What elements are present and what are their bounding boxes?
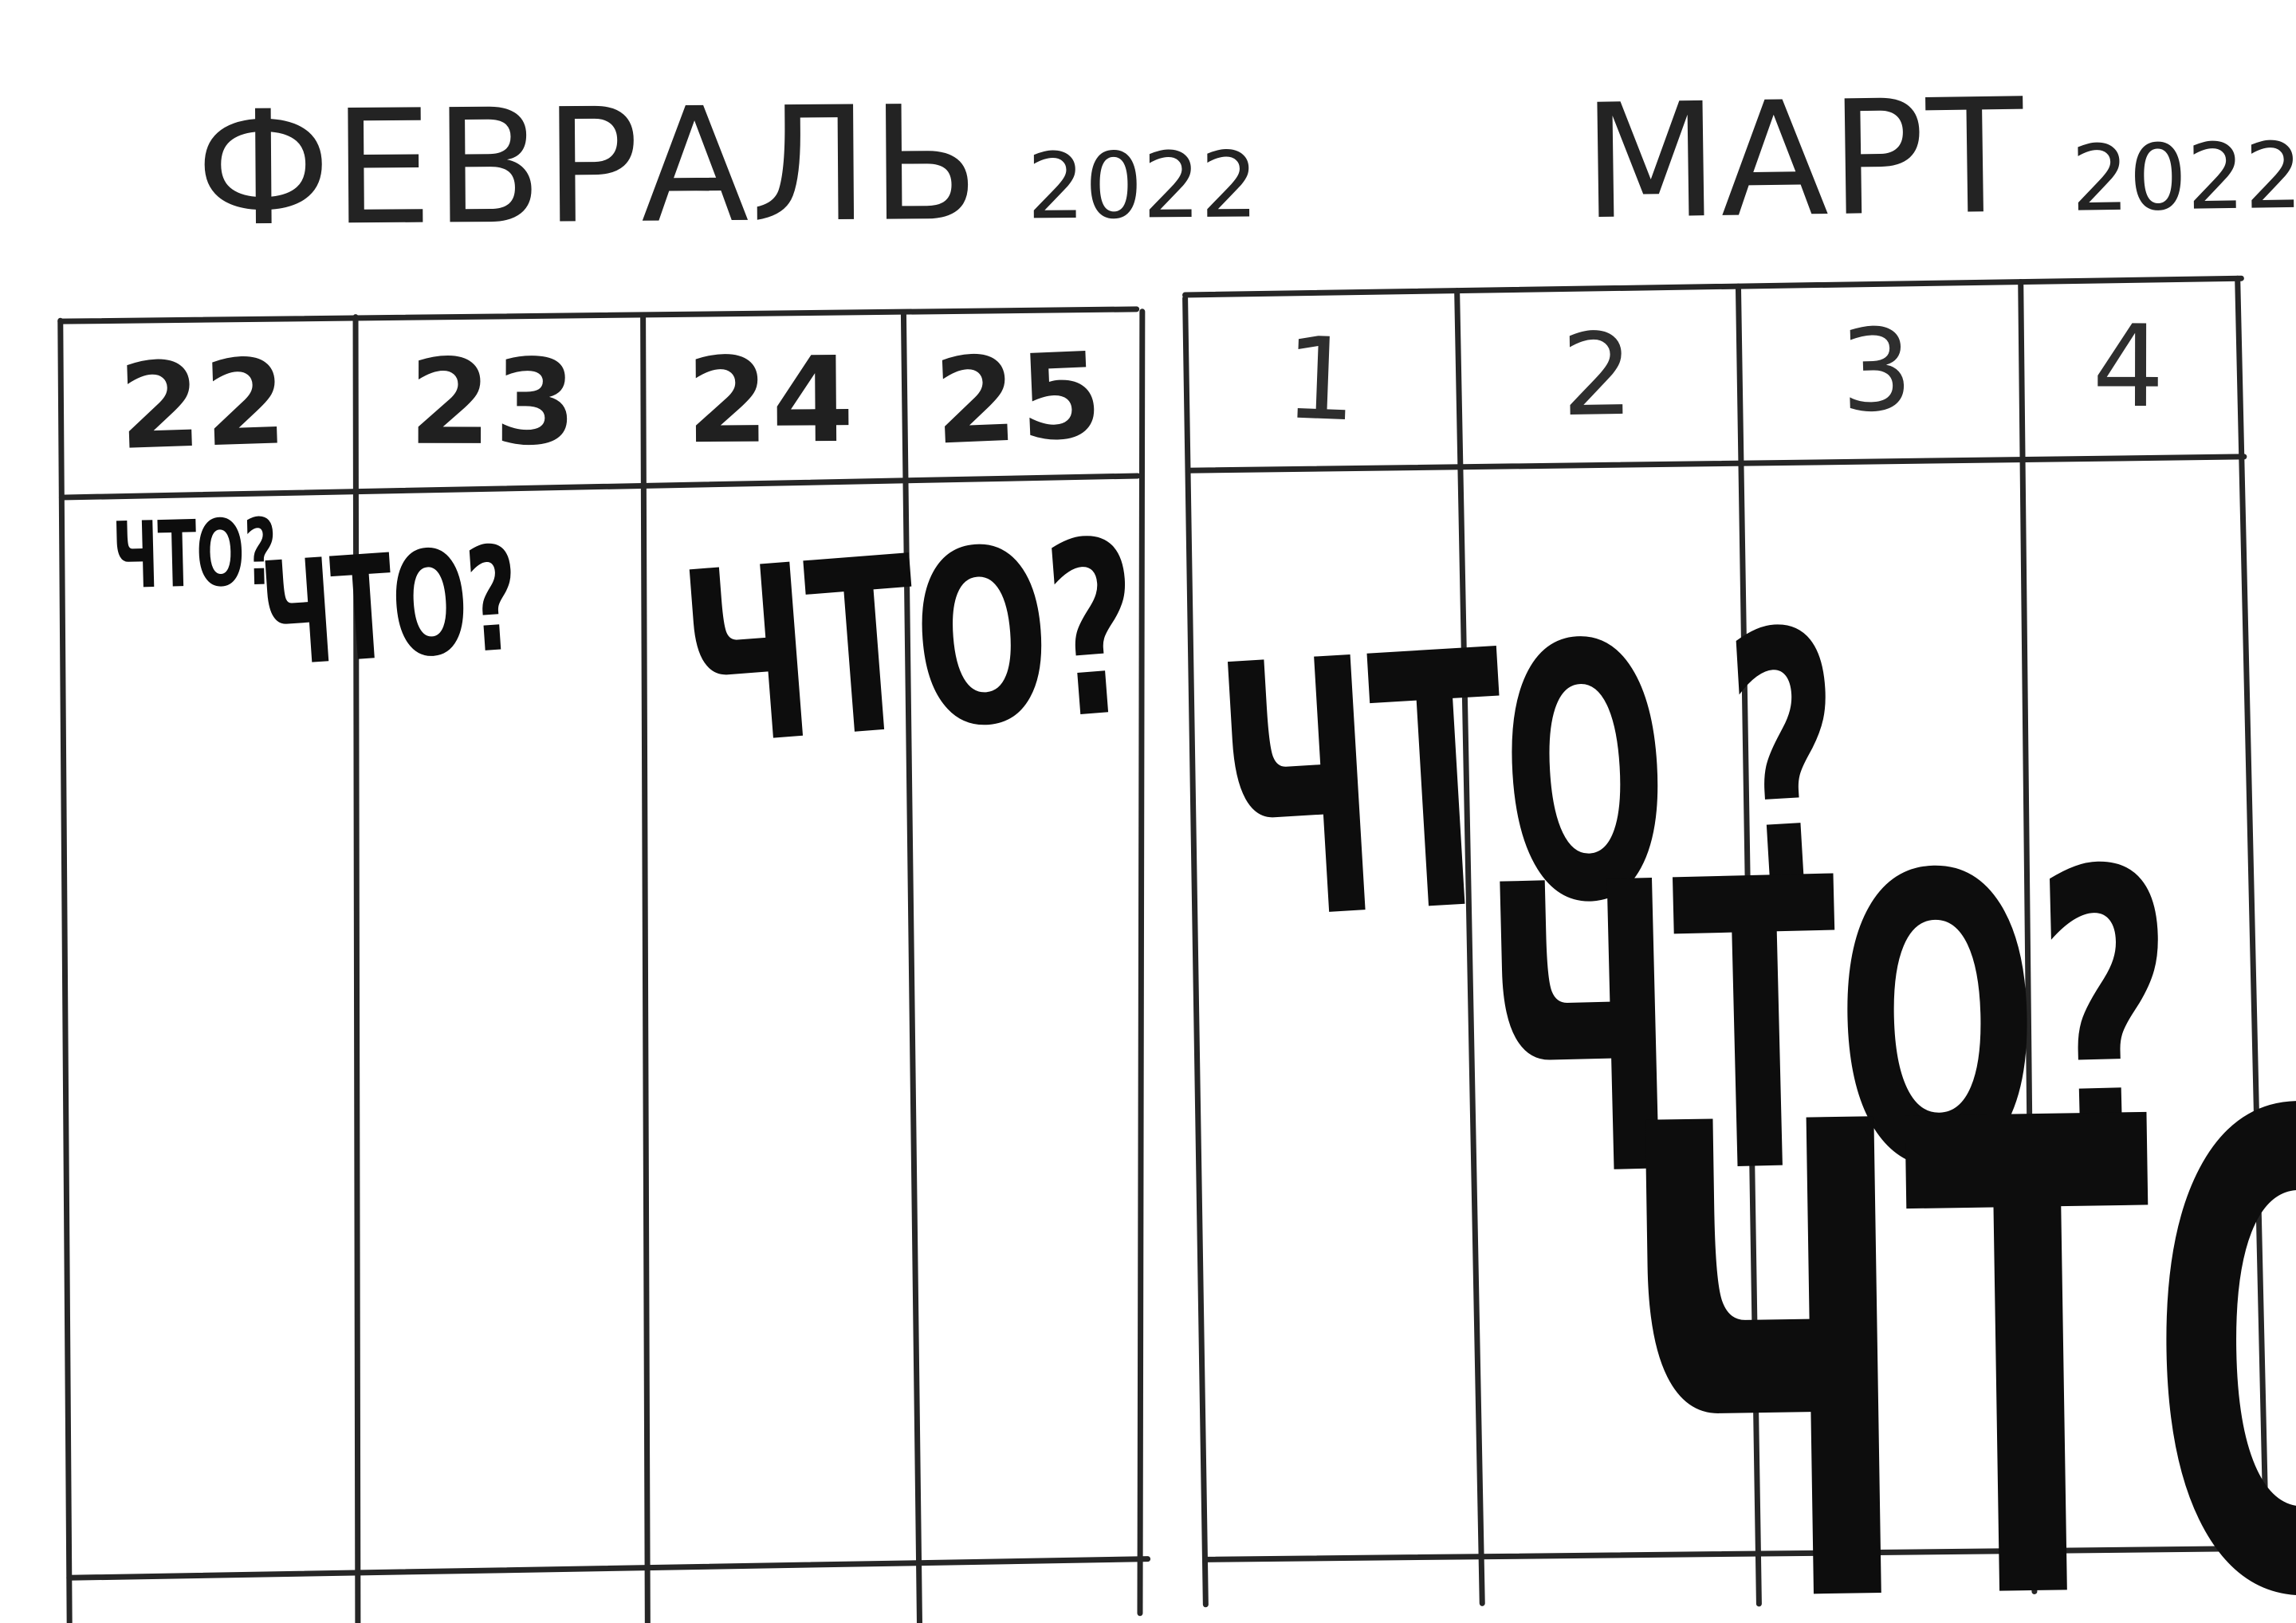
march-year-label: 2022 [2070, 123, 2296, 232]
day-header-mar-2: 2 [1457, 295, 1738, 455]
february-month-label: ФЕВРАЛЬ [195, 72, 981, 261]
day-header-mar-1: 1 [1181, 297, 1461, 462]
day-number: 23 [409, 334, 580, 471]
march-calendar: 1 2 3 4 ЧТО ? ЧТО? ЧТО [1182, 276, 2265, 1622]
table-left-border [57, 318, 72, 1623]
march-title: МАРТ 2022 [1581, 61, 2296, 255]
day-header-feb-24: 24 [638, 323, 905, 477]
day-number: 25 [931, 327, 1107, 471]
day-number: 24 [686, 332, 857, 470]
day-number: 1 [1283, 312, 1359, 446]
day-header-feb-23: 23 [350, 326, 639, 480]
table-right-border [1137, 308, 1145, 1616]
illustration-canvas: ФЕВРАЛЬ 2022 МАРТ 2022 22 23 24 25 ЧТО? [0, 0, 2296, 1623]
table-top-border [57, 306, 1139, 324]
day-number: 2 [1560, 308, 1634, 441]
entry-what-feb-22: ЧТО? [112, 507, 277, 603]
table-left-border [1182, 295, 1209, 1607]
march-month-label: МАРТ [1581, 65, 2026, 255]
day-header-feb-25: 25 [902, 317, 1138, 480]
entry-what-feb-24-25: ЧТО? [674, 509, 1146, 782]
day-number: 4 [2092, 301, 2164, 432]
day-number: 3 [1838, 304, 1915, 438]
day-header-mar-4: 4 [2015, 289, 2240, 445]
column-divider [640, 312, 651, 1623]
day-header-feb-22: 22 [56, 323, 352, 485]
february-title: ФЕВРАЛЬ 2022 [195, 69, 1259, 261]
entry-what-mar-3-giant: ЧТО [1615, 1032, 2296, 1623]
february-year-label: 2022 [1027, 132, 1259, 239]
february-calendar: 22 23 24 25 ЧТО? ЧТО? ЧТО? [57, 308, 1149, 1623]
entry-what-feb-23: ЧТО? [257, 528, 522, 688]
day-header-mar-3: 3 [1734, 288, 2018, 453]
table-bottom-border [66, 1556, 1150, 1581]
day-number: 22 [116, 333, 292, 476]
column-divider [353, 314, 361, 1623]
